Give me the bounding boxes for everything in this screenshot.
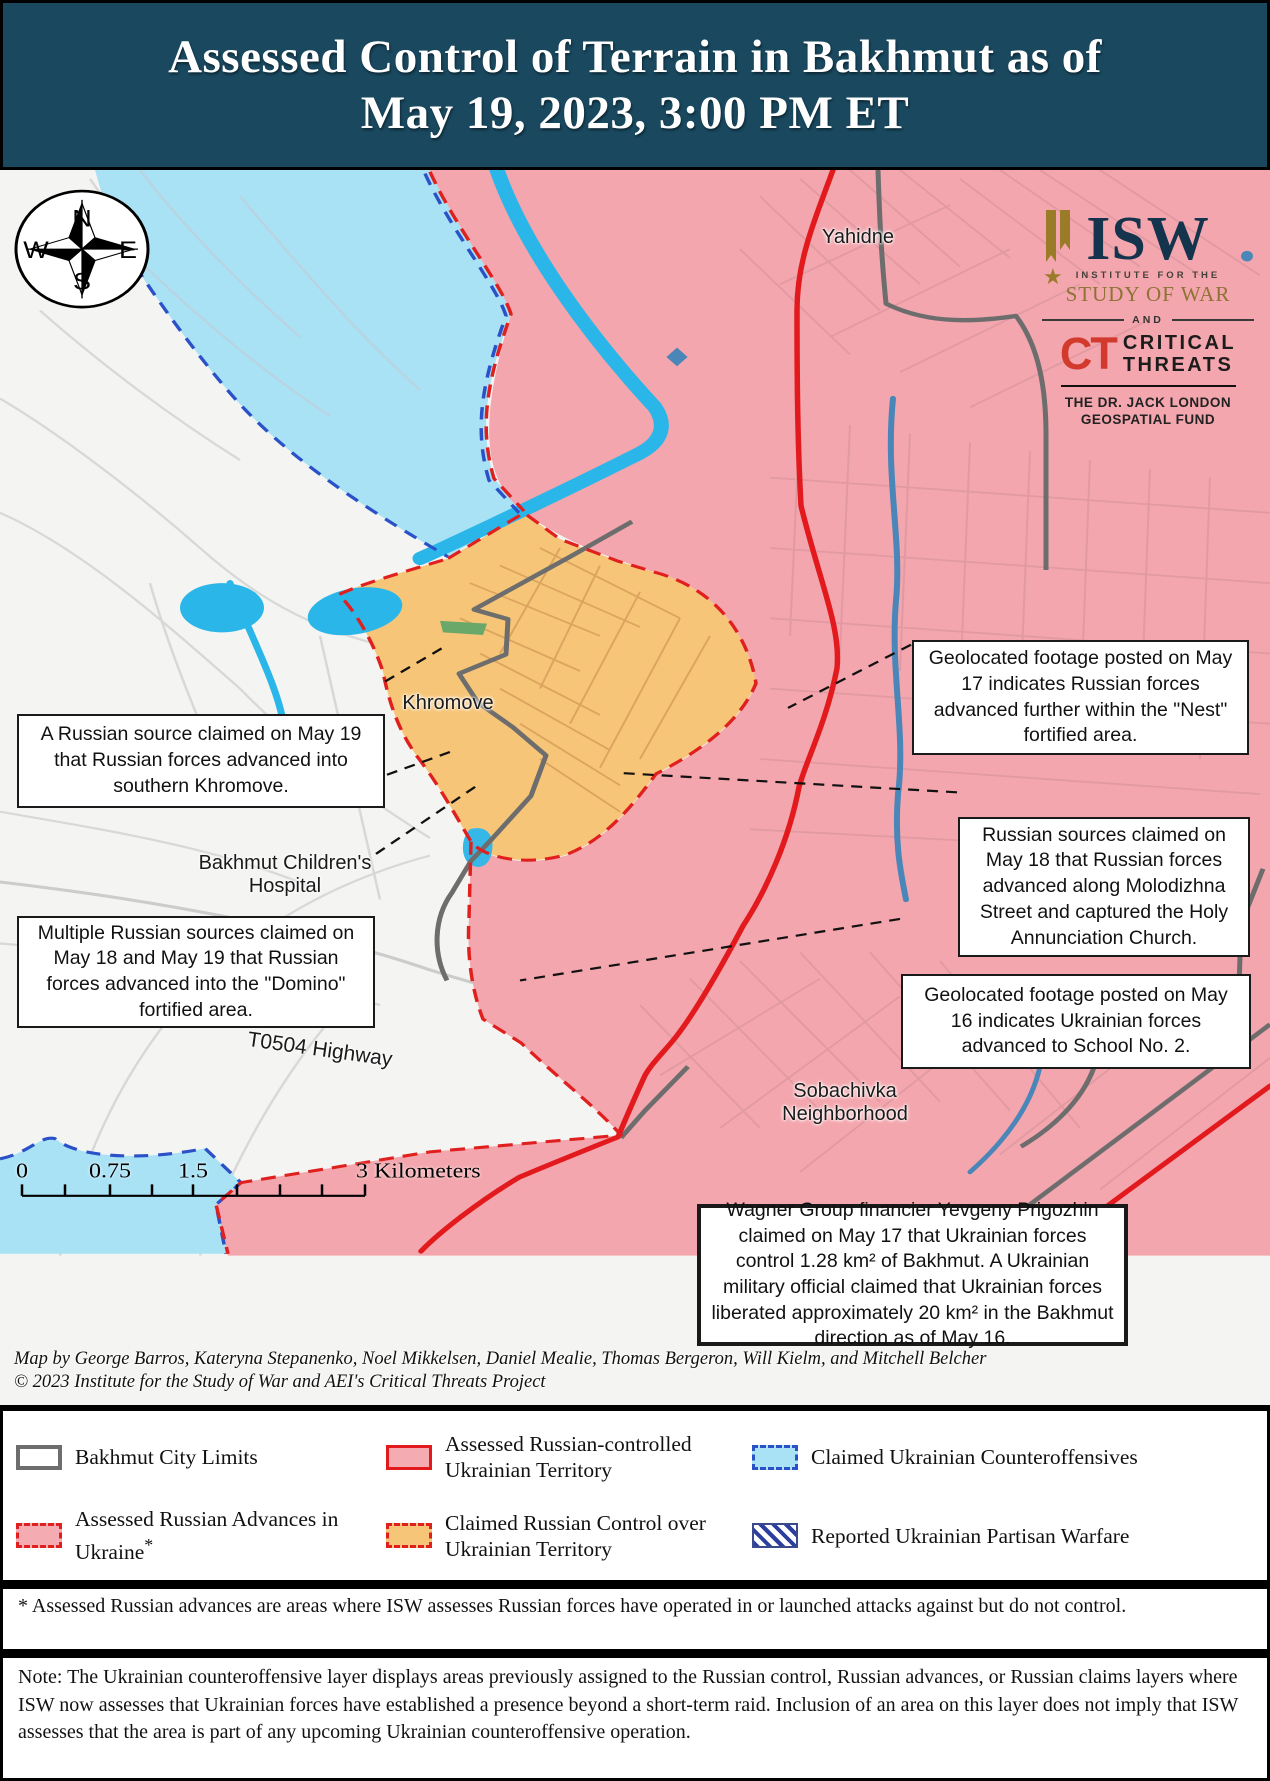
- legend-item-counteroffensives: Claimed Ukrainian Counteroffensives: [752, 1444, 1262, 1470]
- west-pond: [180, 583, 264, 632]
- compass-n-label: N: [72, 206, 92, 232]
- callout-school: Geolocated footage posted on May 16 indi…: [901, 974, 1251, 1069]
- label-khromove: Khromove: [368, 692, 528, 715]
- credits-line1: Map by George Barros, Kateryna Stepanenk…: [14, 1348, 986, 1371]
- scale-15: 1.5: [178, 1159, 208, 1182]
- russian-advances-swatch: [16, 1523, 62, 1548]
- city-limits-swatch: [16, 1445, 62, 1470]
- isw-bakhmut-map-page: Assessed Control of Terrain in Bakhmut a…: [0, 0, 1270, 1781]
- callout-khromove: A Russian source claimed on May 19 that …: [17, 714, 385, 808]
- russian-controlled-swatch: [386, 1445, 432, 1470]
- isw-institute-text: INSTITUTE FOR THE: [1076, 270, 1220, 281]
- footnote-note: Note: The Ukrainian counteroffensive lay…: [0, 1652, 1270, 1781]
- label-bakhmut-childrens-hospital: Bakhmut Children's Hospital: [175, 852, 395, 898]
- and-rule-left: [1042, 319, 1124, 321]
- legend-label-russian-advances: Assessed Russian Advances in Ukraine*: [75, 1506, 382, 1565]
- legend-asterisk: *: [144, 1535, 153, 1555]
- legend-label-claimed-russian: Claimed Russian Control over Ukrainian T…: [445, 1510, 748, 1562]
- callout-domino: Multiple Russian sources claimed on May …: [17, 916, 375, 1028]
- and-text: AND: [1132, 314, 1164, 326]
- page-title-line2: May 19, 2023, 3:00 PM ET: [361, 85, 910, 141]
- and-rule-right: [1172, 319, 1254, 321]
- fund-line2: GEOSPATIAL FUND: [1081, 411, 1215, 428]
- fund-line1: THE DR. JACK LONDON: [1065, 394, 1231, 411]
- legend-item-claimed-russian: Claimed Russian Control over Ukrainian T…: [386, 1510, 748, 1562]
- legend-label-russian-advances-text: Assessed Russian Advances in Ukraine: [75, 1507, 338, 1564]
- title-banner: Assessed Control of Terrain in Bakhmut a…: [0, 0, 1270, 170]
- legend-label-city-limits: Bakhmut City Limits: [75, 1444, 258, 1470]
- ct-critical-text: CRITICAL: [1123, 332, 1236, 354]
- isw-study-of-war-text: STUDY OF WAR: [1066, 282, 1231, 307]
- legend-item-russian-controlled: Assessed Russian-controlled Ukrainian Te…: [386, 1431, 748, 1483]
- page-title-line1: Assessed Control of Terrain in Bakhmut a…: [168, 29, 1102, 85]
- footnote-asterisk: * Assessed Russian advances are areas wh…: [0, 1583, 1270, 1652]
- callout-nest: Geolocated footage posted on May 17 indi…: [912, 640, 1249, 755]
- callout-domino-text: Multiple Russian sources claimed on May …: [29, 921, 363, 1024]
- scale-3km: 3 Kilometers: [356, 1159, 481, 1182]
- callout-molodizhna: Russian sources claimed on May 18 that R…: [958, 817, 1250, 957]
- map-canvas: N E S W 0 0.75 1.5 3 Kilometers Yahidne …: [0, 170, 1270, 1405]
- logo-divider: [1061, 385, 1236, 387]
- callout-school-text: Geolocated footage posted on May 16 indi…: [913, 983, 1239, 1060]
- legend-item-partisan: Reported Ukrainian Partisan Warfare: [752, 1523, 1262, 1549]
- ct-logo-icon: CT: [1060, 334, 1116, 374]
- label-yahidne: Yahidne: [788, 226, 928, 249]
- credits-line2: © 2023 Institute for the Study of War an…: [14, 1371, 986, 1394]
- partisan-warfare-swatch: [752, 1523, 798, 1548]
- isw-ct-logo: ★ ISW INSTITUTE FOR THE STUDY OF WAR AND…: [1042, 210, 1254, 428]
- callout-nest-text: Geolocated footage posted on May 17 indi…: [924, 646, 1237, 749]
- scale-0: 0: [16, 1159, 28, 1182]
- ct-threats-text: THREATS: [1123, 354, 1233, 376]
- svg-text:★: ★: [1043, 264, 1063, 286]
- legend-item-russian-advances: Assessed Russian Advances in Ukraine*: [16, 1506, 382, 1565]
- compass-rose: N E S W: [16, 191, 148, 307]
- compass-s-label: S: [73, 269, 91, 295]
- label-sobachivka-neighborhood: Sobachivka Neighborhood: [735, 1080, 955, 1126]
- legend-item-city-limits: Bakhmut City Limits: [16, 1444, 382, 1470]
- legend-label-partisan: Reported Ukrainian Partisan Warfare: [811, 1523, 1129, 1549]
- compass-w-label: W: [23, 237, 48, 263]
- compass-e-label: E: [119, 237, 137, 263]
- scale-075: 0.75: [89, 1159, 131, 1182]
- claimed-russian-swatch: [386, 1523, 432, 1548]
- legend-label-russian-controlled: Assessed Russian-controlled Ukrainian Te…: [445, 1431, 748, 1483]
- callout-khromove-text: A Russian source claimed on May 19 that …: [29, 722, 373, 799]
- legend-label-counteroffensives: Claimed Ukrainian Counteroffensives: [811, 1444, 1138, 1470]
- callout-molodizhna-text: Russian sources claimed on May 18 that R…: [970, 823, 1238, 952]
- isw-ribbon-icon: ★: [1042, 210, 1074, 286]
- map-legend: Bakhmut City Limits Assessed Russian-con…: [0, 1405, 1270, 1583]
- callout-wagner: Wagner Group financier Yevgeny Prigozhin…: [697, 1204, 1128, 1346]
- map-credits: Map by George Barros, Kateryna Stepanenk…: [14, 1348, 986, 1394]
- callout-wagner-text: Wagner Group financier Yevgeny Prigozhin…: [711, 1198, 1114, 1352]
- isw-wordmark: ISW: [1086, 210, 1210, 268]
- counteroffensives-swatch: [752, 1445, 798, 1470]
